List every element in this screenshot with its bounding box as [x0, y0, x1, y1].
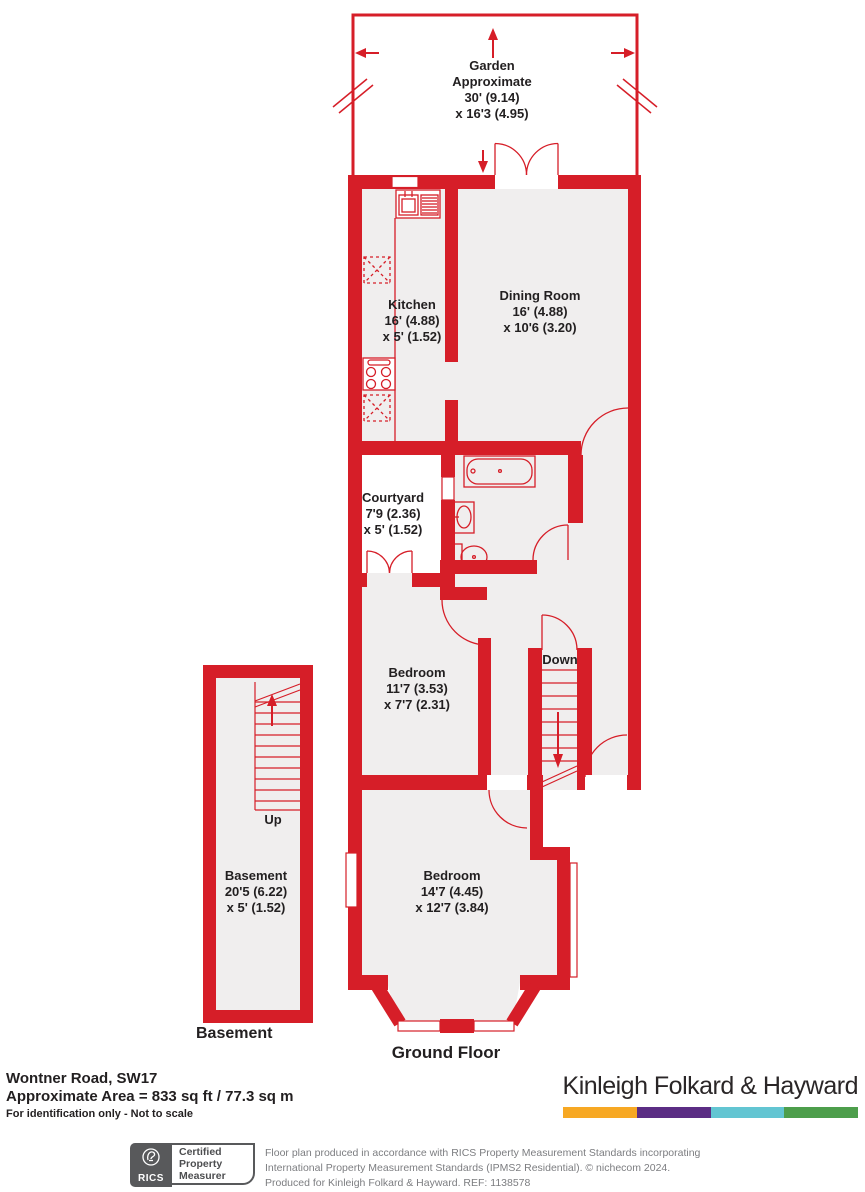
- ground-floor-label: Ground Floor: [376, 1043, 516, 1063]
- scale-disclaimer: For identification only - Not to scale: [6, 1108, 193, 1120]
- rics-cert-line: Certified: [179, 1146, 253, 1158]
- floorplan-page: Garden Approximate 30' (9.14) x 16'3 (4.…: [0, 0, 865, 1192]
- brand-bar-green: [784, 1107, 858, 1118]
- courtyard-label: Courtyard 7'9 (2.36) x 5' (1.52): [343, 490, 443, 538]
- legal-disclaimer: Floor plan produced in accordance with R…: [265, 1146, 700, 1191]
- property-address: Wontner Road, SW17: [6, 1070, 157, 1087]
- brand-bar-purple: [637, 1107, 711, 1118]
- kitchen-label: Kitchen 16' (4.88) x 5' (1.52): [352, 297, 472, 345]
- rics-certified-badge: RICS Certified Property Measurer: [130, 1143, 255, 1187]
- garden-label: Garden Approximate 30' (9.14) x 16'3 (4.…: [412, 58, 572, 122]
- legal-line-3: Produced for Kinleigh Folkard & Hayward.…: [265, 1176, 700, 1191]
- rics-certification-box: Certified Property Measurer: [172, 1143, 255, 1185]
- stairs-up-label: Up: [243, 812, 303, 827]
- rics-cert-line: Measurer: [179, 1170, 253, 1182]
- rics-logo-box: RICS: [130, 1143, 172, 1187]
- brand-logo: Kinleigh Folkard & Hayward: [558, 1072, 858, 1118]
- rics-cert-line: Property: [179, 1158, 253, 1170]
- floorplan-drawing: [0, 0, 865, 1192]
- basement-floor-label: Basement: [196, 1025, 272, 1043]
- brand-bar-orange: [563, 1107, 637, 1118]
- brand-color-bar: [563, 1107, 858, 1118]
- legal-line-1: Floor plan produced in accordance with R…: [265, 1146, 700, 1161]
- basement-room-label: Basement 20'5 (6.22) x 5' (1.52): [203, 868, 309, 916]
- stairs-down-label: Down: [530, 652, 590, 667]
- approximate-area: Approximate Area = 833 sq ft / 77.3 sq m: [6, 1088, 293, 1105]
- brand-bar-teal: [711, 1107, 785, 1118]
- dining-room-label: Dining Room 16' (4.88) x 10'6 (3.20): [460, 288, 620, 336]
- bedroom-mid-label: Bedroom 11'7 (3.53) x 7'7 (2.31): [347, 665, 487, 713]
- legal-line-2: International Property Measurement Stand…: [265, 1161, 700, 1176]
- bedroom-front-label: Bedroom 14'7 (4.45) x 12'7 (3.84): [372, 868, 532, 916]
- rics-lion-icon: [141, 1147, 161, 1172]
- rics-org-label: RICS: [138, 1173, 164, 1184]
- brand-name: Kinleigh Folkard & Hayward: [558, 1072, 858, 1101]
